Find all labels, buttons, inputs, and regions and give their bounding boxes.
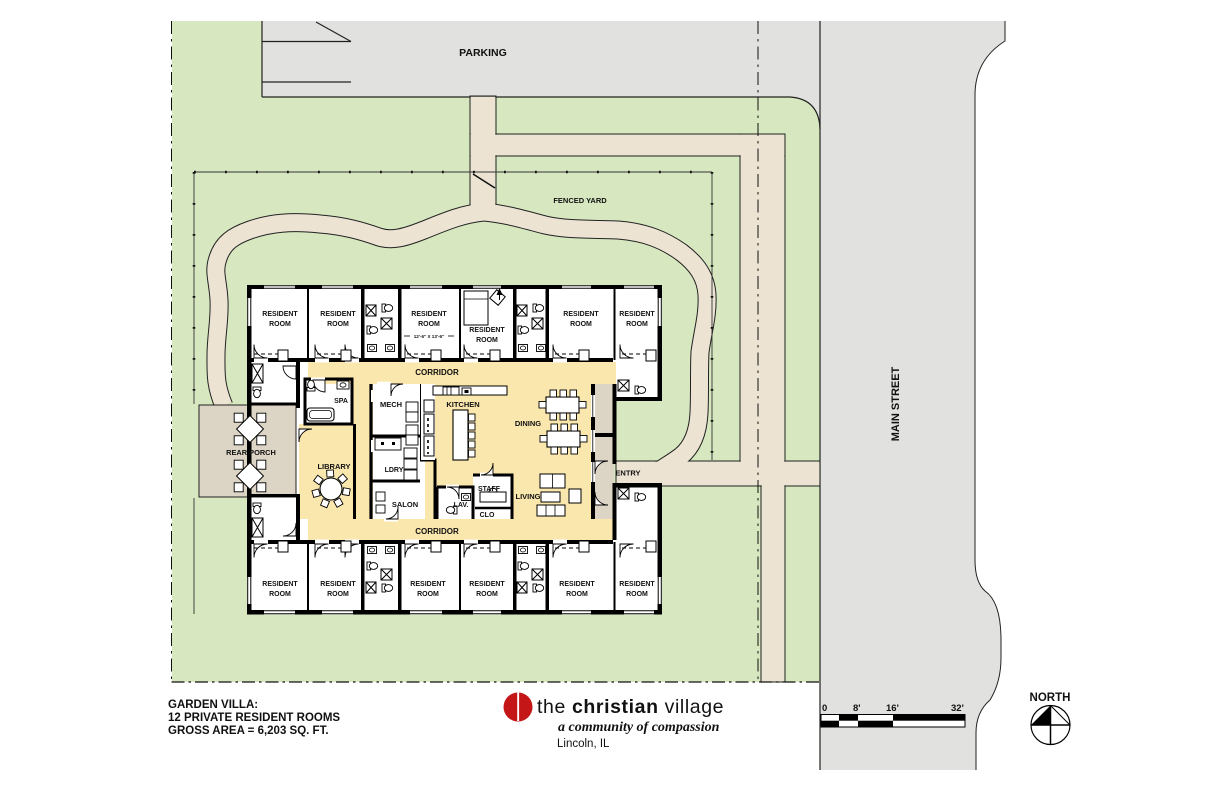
- svg-text:CORRIDOR: CORRIDOR: [415, 527, 459, 536]
- svg-text:ROOM: ROOM: [269, 591, 291, 598]
- svg-text:the christian village: the christian village: [537, 696, 724, 718]
- svg-text:32': 32': [951, 703, 964, 714]
- svg-text:16': 16': [886, 703, 899, 714]
- svg-text:RESIDENT: RESIDENT: [619, 581, 655, 588]
- svg-text:12 PRIVATE RESIDENT ROOMS: 12 PRIVATE RESIDENT ROOMS: [168, 712, 340, 724]
- svg-text:NORTH: NORTH: [1030, 692, 1071, 704]
- svg-text:RESIDENT: RESIDENT: [619, 311, 655, 318]
- svg-text:CORRIDOR: CORRIDOR: [415, 368, 459, 377]
- svg-text:ROOM: ROOM: [327, 591, 349, 598]
- svg-text:LDRY: LDRY: [385, 467, 404, 474]
- svg-text:0: 0: [822, 703, 827, 714]
- svg-text:ENTRY: ENTRY: [615, 469, 640, 478]
- svg-text:DINING: DINING: [515, 419, 541, 428]
- svg-text:MAIN STREET: MAIN STREET: [890, 366, 902, 441]
- svg-text:RESIDENT: RESIDENT: [469, 581, 505, 588]
- svg-text:ROOM: ROOM: [418, 321, 440, 328]
- svg-text:ROOM: ROOM: [626, 591, 648, 598]
- svg-text:RESIDENT: RESIDENT: [262, 581, 298, 588]
- svg-text:ROOM: ROOM: [476, 591, 498, 598]
- svg-text:RESIDENT: RESIDENT: [320, 311, 356, 318]
- svg-text:SPA: SPA: [334, 398, 348, 405]
- svg-text:ROOM: ROOM: [269, 321, 291, 328]
- svg-text:PARKING: PARKING: [459, 47, 507, 59]
- svg-text:ROOM: ROOM: [476, 337, 498, 344]
- svg-text:ROOM: ROOM: [570, 321, 592, 328]
- svg-text:MECH: MECH: [380, 400, 402, 409]
- svg-text:LIBRARY: LIBRARY: [317, 462, 350, 471]
- svg-text:RESIDENT: RESIDENT: [559, 581, 595, 588]
- svg-text:REAR PORCH: REAR PORCH: [226, 448, 276, 457]
- svg-text:RESIDENT: RESIDENT: [320, 581, 356, 588]
- svg-text:KITCHEN: KITCHEN: [446, 400, 479, 409]
- svg-text:ROOM: ROOM: [626, 321, 648, 328]
- svg-text:12'-6" X 13'-6": 12'-6" X 13'-6": [414, 334, 445, 339]
- svg-text:GARDEN VILLA:: GARDEN VILLA:: [168, 699, 258, 711]
- svg-text:ROOM: ROOM: [417, 591, 439, 598]
- svg-text:RESIDENT: RESIDENT: [563, 311, 599, 318]
- svg-text:SALON: SALON: [392, 500, 418, 509]
- svg-text:RESIDENT: RESIDENT: [262, 311, 298, 318]
- svg-text:CLO: CLO: [480, 512, 495, 519]
- svg-text:GROSS AREA = 6,203 SQ. FT.: GROSS AREA = 6,203 SQ. FT.: [168, 725, 329, 737]
- svg-text:Lincoln, IL: Lincoln, IL: [557, 738, 610, 750]
- svg-text:LAV.: LAV.: [454, 502, 469, 509]
- svg-text:a community of compassion: a community of compassion: [558, 720, 720, 735]
- svg-text:ROOM: ROOM: [327, 321, 349, 328]
- svg-text:LIVING: LIVING: [515, 492, 540, 501]
- svg-text:8': 8': [853, 703, 861, 714]
- svg-text:FENCED YARD: FENCED YARD: [553, 196, 607, 205]
- svg-text:STAFF: STAFF: [478, 486, 501, 493]
- svg-text:RESIDENT: RESIDENT: [411, 311, 447, 318]
- svg-text:ROOM: ROOM: [566, 591, 588, 598]
- svg-text:RESIDENT: RESIDENT: [469, 327, 505, 334]
- svg-text:RESIDENT: RESIDENT: [410, 581, 446, 588]
